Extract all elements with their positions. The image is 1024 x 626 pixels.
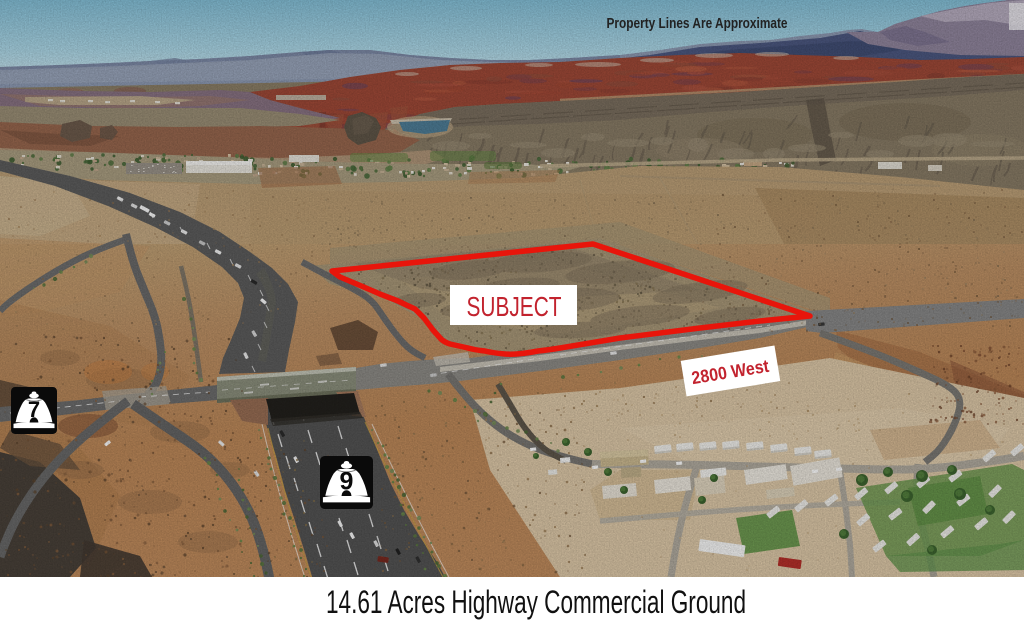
svg-text:7: 7 [28,397,40,422]
svg-text:14.61 Acres Highway Commercial: 14.61 Acres Highway Commercial Ground [326,584,746,620]
svg-text:Property Lines Are Approximate: Property Lines Are Approximate [607,15,788,32]
svg-text:SUBJECT: SUBJECT [467,291,562,322]
svg-text:9: 9 [340,468,354,496]
